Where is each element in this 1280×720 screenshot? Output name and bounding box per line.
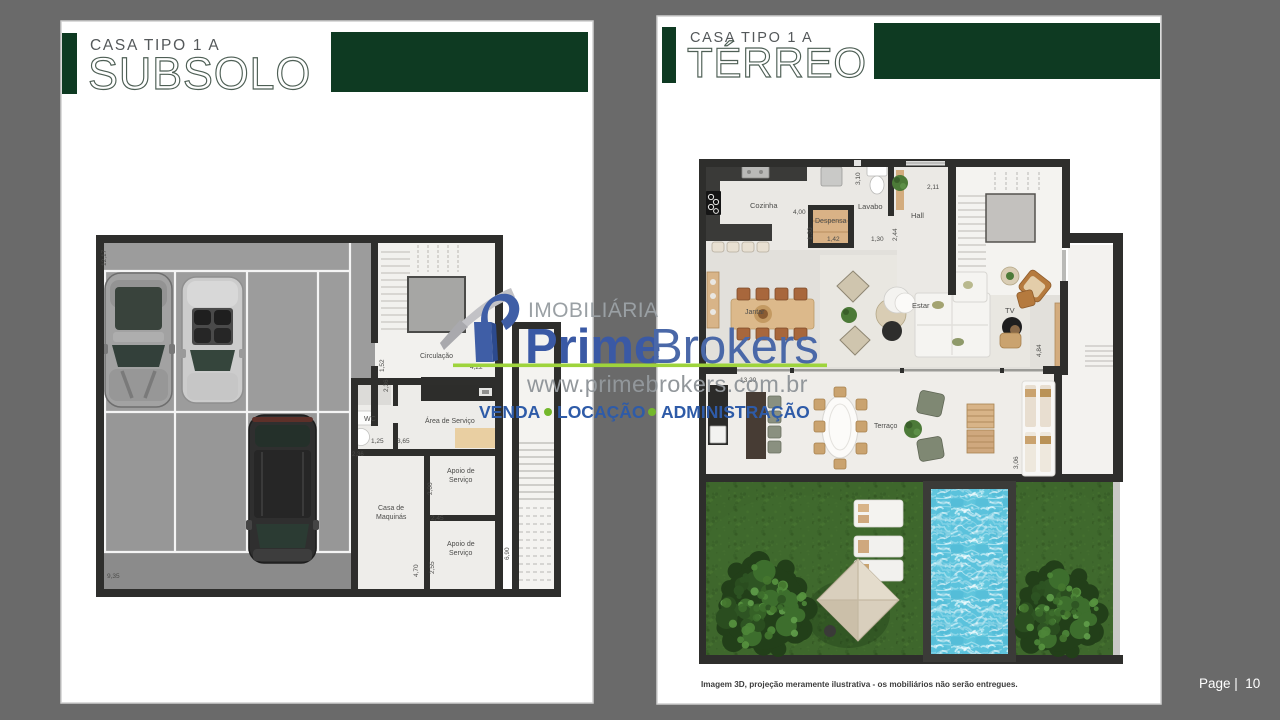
svg-text:2,00: 2,00: [427, 482, 434, 495]
svg-text:ADMINISTRAÇÃO: ADMINISTRAÇÃO: [661, 401, 810, 422]
svg-text:Serviço: Serviço: [449, 477, 472, 484]
svg-text:1,30: 1,30: [807, 227, 814, 240]
svg-text:TÉRREO: TÉRREO: [687, 39, 867, 86]
svg-text:1,25: 1,25: [371, 438, 384, 445]
svg-text:2,44: 2,44: [892, 228, 899, 241]
svg-text:Estar: Estar: [912, 301, 930, 310]
svg-text:www.primebrokers.com.br: www.primebrokers.com.br: [526, 371, 808, 397]
svg-text:Page | 10: Page | 10: [1199, 676, 1260, 691]
svg-text:1,30: 1,30: [871, 236, 884, 243]
svg-text:4,84: 4,84: [1036, 344, 1043, 357]
svg-text:IMOBILIÁRIA: IMOBILIÁRIA: [528, 299, 658, 322]
svg-text:SUBSOLO: SUBSOLO: [88, 48, 311, 99]
svg-text:2,45: 2,45: [431, 515, 444, 522]
svg-text:WC: WC: [364, 416, 376, 423]
svg-text:12,17: 12,17: [101, 249, 108, 266]
svg-text:Jantar: Jantar: [745, 309, 765, 316]
svg-text:1,52: 1,52: [379, 359, 386, 372]
svg-text:Cozinha: Cozinha: [750, 201, 778, 210]
svg-text:4,00: 4,00: [793, 209, 806, 216]
svg-text:3,65: 3,65: [397, 438, 410, 445]
svg-text:2,11: 2,11: [927, 184, 940, 191]
svg-text:6,90: 6,90: [504, 547, 511, 560]
svg-text:Circulação: Circulação: [420, 353, 453, 360]
svg-text:1,42: 1,42: [827, 236, 840, 243]
svg-text:Imagem 3D, projeção meramente: Imagem 3D, projeção meramente ilustrativ…: [701, 680, 1018, 689]
svg-text:TV: TV: [1005, 306, 1015, 315]
svg-text:Apoio de: Apoio de: [447, 468, 475, 475]
svg-text:Casa de: Casa de: [378, 505, 404, 512]
svg-text:Lavabo: Lavabo: [858, 202, 883, 211]
svg-text:VENDA: VENDA: [479, 402, 541, 422]
svg-text:2,55: 2,55: [429, 561, 436, 574]
svg-text:2,36: 2,36: [383, 379, 390, 392]
svg-text:Despensa: Despensa: [815, 218, 847, 225]
svg-text:4,70: 4,70: [413, 564, 420, 577]
svg-text:3,06: 3,06: [1013, 456, 1020, 469]
svg-text:Terraço: Terraço: [874, 423, 897, 430]
svg-text:Hall: Hall: [911, 211, 924, 220]
svg-text:3,10: 3,10: [855, 172, 862, 185]
svg-text:LOCAÇÃO: LOCAÇÃO: [557, 401, 645, 422]
svg-text:2,36: 2,36: [352, 452, 364, 458]
svg-text:Apoio de: Apoio de: [447, 541, 475, 548]
svg-text:9,35: 9,35: [107, 573, 120, 580]
svg-text:Área de Serviço: Área de Serviço: [425, 416, 475, 425]
svg-text:Serviço: Serviço: [449, 550, 472, 557]
svg-text:Maquinás: Maquinás: [376, 514, 407, 521]
